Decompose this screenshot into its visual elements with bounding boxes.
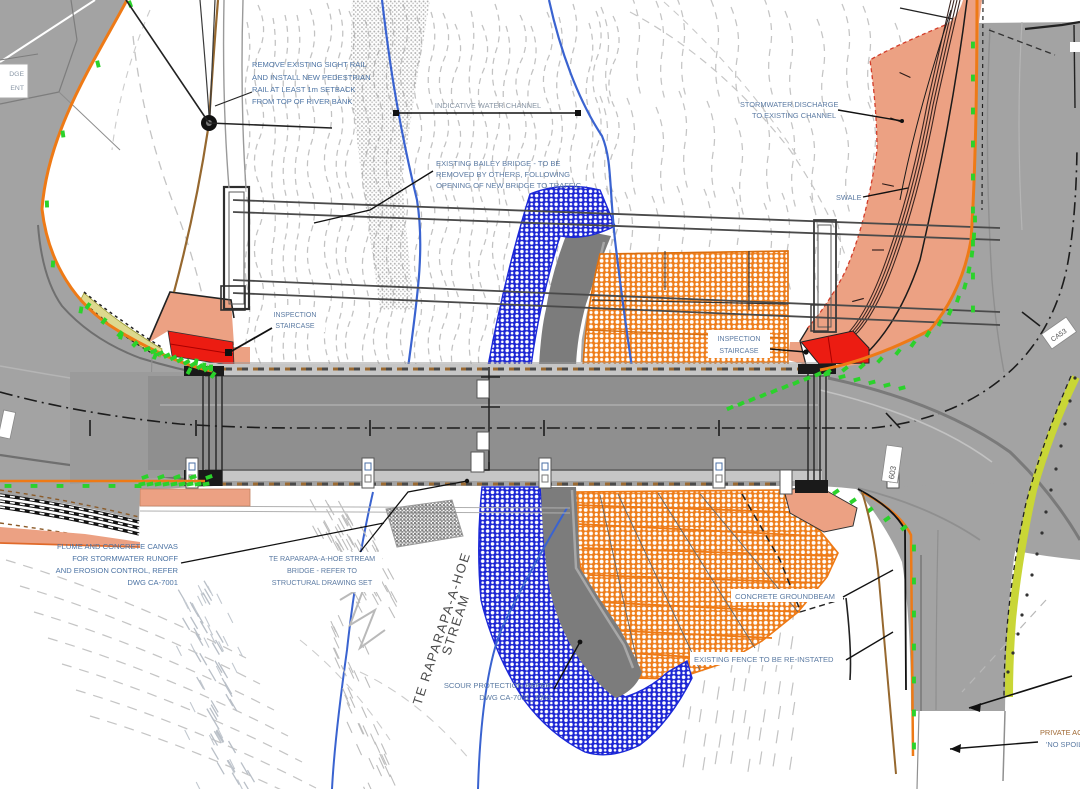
svg-text:SWALE: SWALE bbox=[836, 193, 862, 202]
svg-text:TE RAPARAPA-A-HOE STREAM: TE RAPARAPA-A-HOE STREAM bbox=[269, 554, 375, 563]
svg-text:TO EXISTING CHANNEL: TO EXISTING CHANNEL bbox=[752, 111, 836, 120]
svg-text:ENT: ENT bbox=[10, 85, 24, 92]
svg-text:INSPECTION: INSPECTION bbox=[718, 336, 761, 343]
svg-text:REMOVE EXISTING SIGHT RAIL: REMOVE EXISTING SIGHT RAIL bbox=[252, 60, 367, 69]
svg-text:FROM TOP OF RIVER BANK: FROM TOP OF RIVER BANK bbox=[252, 97, 352, 106]
svg-text:CONCRETE GROUNDBEAM: CONCRETE GROUNDBEAM bbox=[735, 592, 835, 601]
svg-text:BRIDGE - REFER TO: BRIDGE - REFER TO bbox=[287, 566, 357, 575]
svg-text:DWG CA-7001: DWG CA-7001 bbox=[127, 578, 178, 587]
svg-text:AND INSTALL NEW PEDESTRIAN: AND INSTALL NEW PEDESTRIAN bbox=[252, 73, 371, 82]
svg-text:STAIRCASE: STAIRCASE bbox=[719, 348, 758, 355]
svg-text:PRIVATE ACCESS TO BE: PRIVATE ACCESS TO BE bbox=[1040, 728, 1080, 737]
svg-text:DWG CA-7001_7003: DWG CA-7001_7003 bbox=[479, 693, 551, 702]
svg-text:STRUCTURAL DRAWING SET: STRUCTURAL DRAWING SET bbox=[272, 578, 373, 587]
svg-text:REMOVED BY OTHERS, FOLLOWING: REMOVED BY OTHERS, FOLLOWING bbox=[436, 170, 570, 179]
svg-text:EXISTING BAILEY BRIDGE - TO BE: EXISTING BAILEY BRIDGE - TO BE bbox=[436, 159, 561, 168]
svg-text:INSPECTION: INSPECTION bbox=[274, 312, 317, 319]
svg-text:OPENING OF NEW BRIDGE TO TRAFF: OPENING OF NEW BRIDGE TO TRAFFIC bbox=[436, 181, 582, 190]
svg-text:RAIL AT LEAST 1m SETBACK: RAIL AT LEAST 1m SETBACK bbox=[252, 85, 356, 94]
svg-text:EXISTING FENCE TO BE RE-INSTAT: EXISTING FENCE TO BE RE-INSTATED bbox=[694, 655, 834, 664]
svg-text:FLUME AND CONCRETE CANVAS: FLUME AND CONCRETE CANVAS bbox=[57, 542, 178, 551]
svg-text:'NO SPOIL' ZONE: 'NO SPOIL' ZONE bbox=[1046, 740, 1080, 749]
svg-text:AND EROSION CONTROL, REFER: AND EROSION CONTROL, REFER bbox=[56, 566, 179, 575]
svg-text:STORMWATER DISCHARGE: STORMWATER DISCHARGE bbox=[740, 100, 838, 109]
svg-text:INDICATIVE WATER CHANNEL: INDICATIVE WATER CHANNEL bbox=[435, 101, 541, 110]
svg-text:SCOUR PROTECTION REFER: SCOUR PROTECTION REFER bbox=[444, 681, 552, 690]
svg-text:STAIRCASE: STAIRCASE bbox=[275, 323, 314, 330]
svg-text:FOR STORMWATER RUNOFF: FOR STORMWATER RUNOFF bbox=[72, 554, 178, 563]
svg-text:DGE: DGE bbox=[9, 71, 24, 78]
